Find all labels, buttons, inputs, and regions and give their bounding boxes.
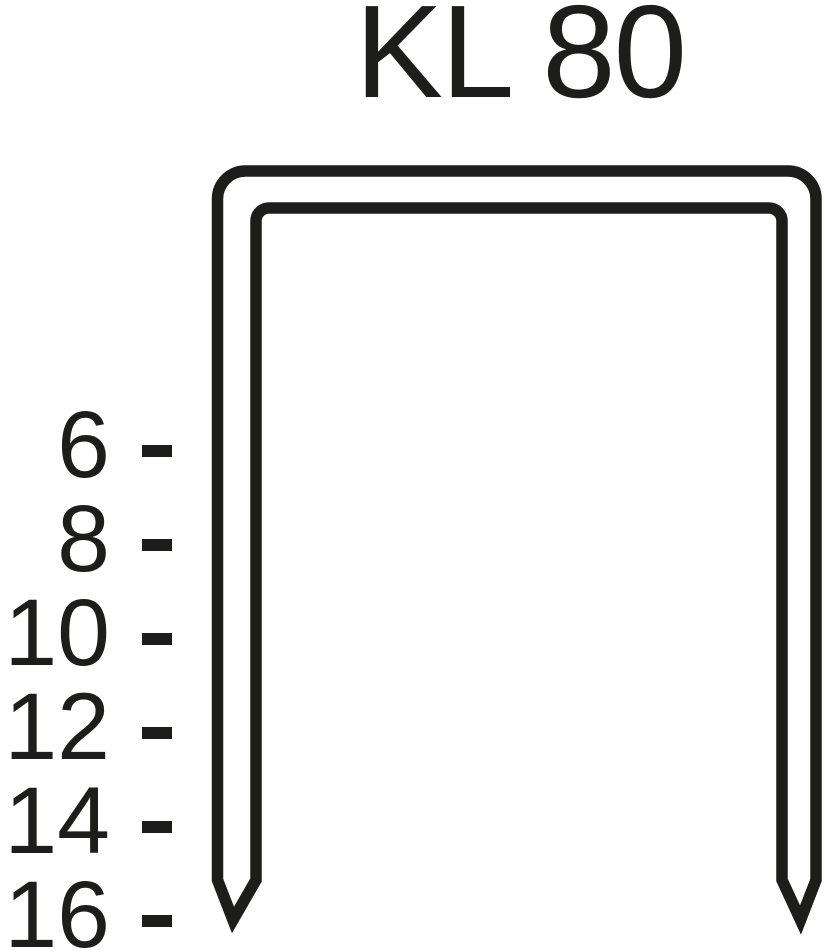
size-label-row: 14 (0, 774, 172, 868)
size-label: 10 (4, 586, 110, 680)
size-label-row: 16 (0, 868, 172, 952)
tick-mark (142, 915, 172, 927)
tick-mark (142, 539, 172, 551)
size-label: 14 (4, 774, 110, 868)
size-label: 6 (57, 398, 110, 492)
size-label-row: 8 (0, 492, 172, 586)
tick-mark (142, 445, 172, 457)
tick-mark (142, 727, 172, 739)
size-label-row: 6 (0, 398, 172, 492)
staple-outline-icon (218, 171, 817, 920)
size-label: 12 (4, 680, 110, 774)
size-label: 8 (57, 492, 110, 586)
tick-mark (142, 633, 172, 645)
staple-diagram-page: KL 80 6 8 10 12 14 16 (0, 0, 825, 952)
size-label: 16 (4, 868, 110, 952)
tick-mark (142, 821, 172, 833)
size-label-row: 12 (0, 680, 172, 774)
size-label-row: 10 (0, 586, 172, 680)
